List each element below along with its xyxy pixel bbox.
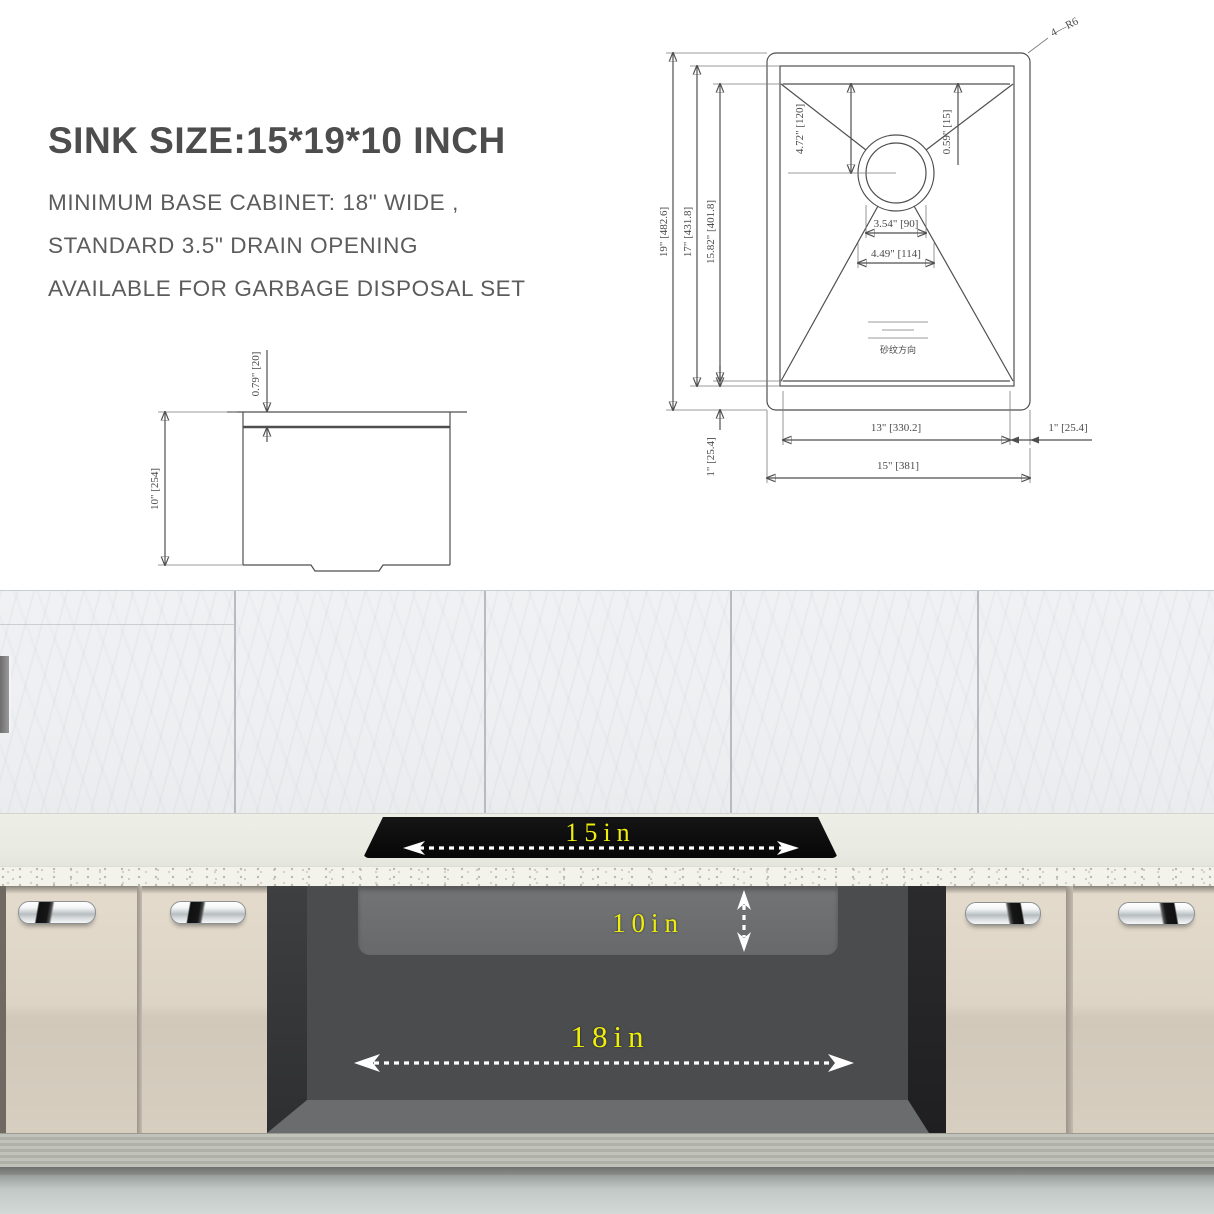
kitchen-render: 15in 10in (0, 590, 1214, 1214)
dim-rim-width-bottom: 1" [25.4] (705, 437, 717, 476)
opening-right-wall (908, 886, 946, 1133)
top-view-drawing: 3.54" [90] 4.49" [114] 4.72" [120] 0.59"… (655, 8, 1214, 500)
wall-edge-object (0, 656, 11, 733)
dim-rim-width-right: 1" [25.4] (1048, 422, 1087, 434)
door-handle (1118, 902, 1195, 925)
floor (0, 1175, 1214, 1214)
door-divider (1066, 886, 1073, 1133)
sink-width-arrow (401, 840, 801, 856)
door-divider (137, 886, 142, 1133)
door-handle (170, 901, 246, 924)
sink-depth-label: 10in (612, 908, 684, 939)
dim-rim-width-top: 0.59" [15] (941, 110, 953, 155)
dim-bowl-height: 15.82" [401.8] (705, 200, 717, 264)
product-image: SINK SIZE:15*19*10 INCH MINIMUM BASE CAB… (0, 0, 1214, 1214)
spec-line-disposal: AVAILABLE FOR GARBAGE DISPOSAL SET (48, 276, 608, 302)
dim-overall-width: 15" [381] (877, 460, 919, 472)
tile-grout-line (977, 591, 979, 814)
dim-bowl-width: 13" [330.2] (871, 422, 921, 434)
sink-depth-arrow (735, 889, 753, 953)
countertop-edge (0, 866, 1214, 888)
tile-grout-line (484, 591, 486, 814)
dim-rim-height: 17" [431.8] (682, 207, 694, 257)
opening-left-wall (267, 886, 307, 1133)
side-view-drawing: 0.79" [20] 10" [254] (140, 330, 500, 590)
spec-text-block: SINK SIZE:15*19*10 INCH MINIMUM BASE CAB… (48, 120, 608, 319)
grain-direction-label: 砂纹方向 (880, 344, 916, 355)
cabinet-left-edge (0, 886, 6, 1133)
dim-drain-from-top: 4.72" [120] (794, 104, 806, 154)
floor-shadow (0, 1167, 1214, 1175)
sink-rim: 15in (363, 817, 838, 858)
spec-line-drain: STANDARD 3.5" DRAIN OPENING (48, 233, 608, 259)
cabinet-width-label: 18in (500, 1019, 720, 1055)
dim-drain-diameter: 3.54" [90] (874, 218, 919, 230)
page-title: SINK SIZE:15*19*10 INCH (48, 120, 608, 162)
tile-grout-line-horizontal (0, 624, 234, 625)
tile-grout-line (730, 591, 732, 814)
sink-outer-outline (767, 53, 1030, 410)
cabinet-width-arrow (352, 1052, 856, 1074)
cabinet-row: 10in 18in (0, 886, 1214, 1133)
dim-depth: 10" [254] (149, 468, 161, 510)
backsplash-wall (0, 590, 1214, 814)
door-handle (965, 902, 1041, 925)
spec-line-cabinet: MINIMUM BASE CABINET: 18" WIDE , (48, 190, 608, 216)
corner-radius-label: 4—R6 (1049, 15, 1081, 39)
door-handle (18, 901, 96, 924)
cabinet-opening (267, 886, 946, 1133)
toe-kick (0, 1133, 1214, 1168)
dim-overall-height: 19" [482.6] (658, 207, 670, 257)
dim-drain-outer-diameter: 4.49" [114] (871, 248, 921, 260)
sink-body-under-counter (358, 886, 838, 955)
tile-grout-line (234, 591, 236, 814)
dim-lip-height: 0.79" [20] (250, 352, 262, 397)
